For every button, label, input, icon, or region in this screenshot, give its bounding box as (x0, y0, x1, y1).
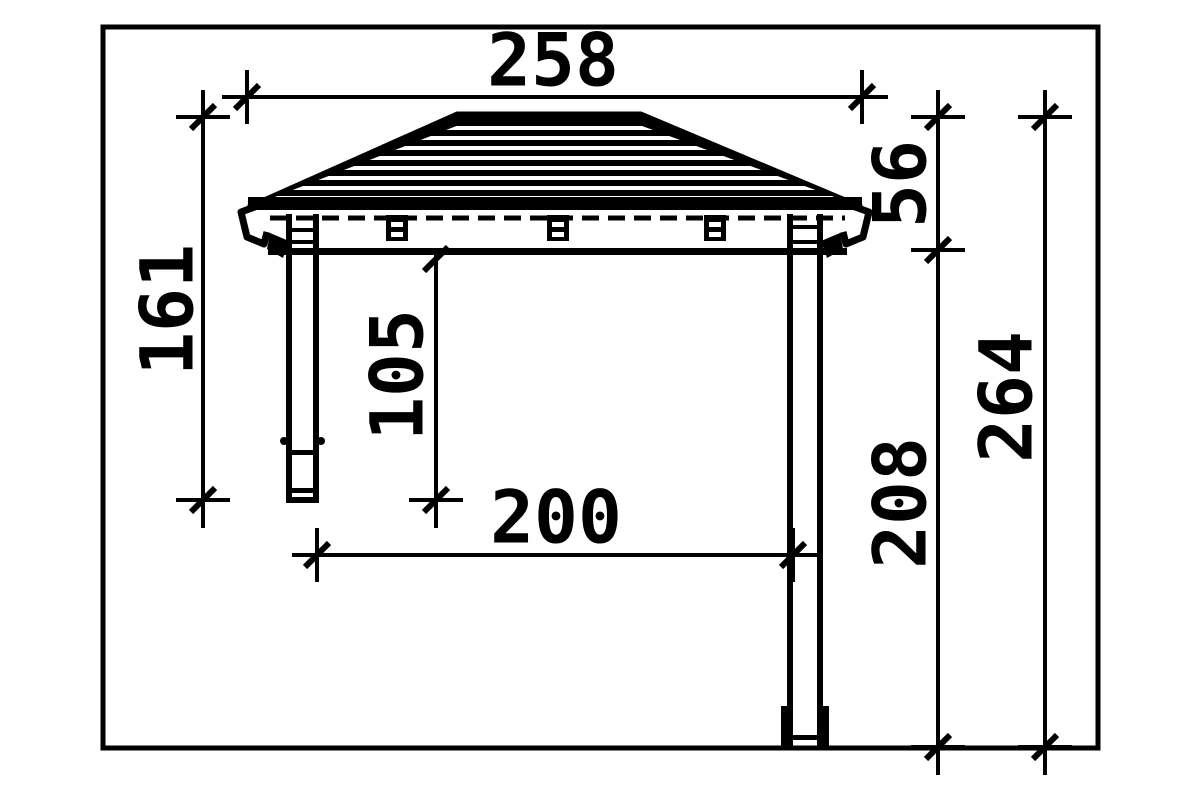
right-post (781, 214, 829, 747)
dim-label-roof-width: 258 (487, 25, 619, 98)
anchor-plate (823, 706, 829, 747)
dim-label-clearance-height: 105 (362, 309, 435, 441)
dim-label-left-height: 161 (132, 244, 205, 376)
rafter-hanger (704, 215, 726, 241)
left-gutter-end (241, 204, 289, 258)
anchor-bolt (280, 437, 288, 445)
eave-fascia-board (248, 197, 862, 210)
dim-label-total-height: 264 (971, 331, 1044, 463)
anchor-plate (781, 706, 787, 747)
dim-label-post-span: 200 (490, 482, 622, 555)
roof (240, 113, 870, 210)
rafter-hanger (386, 215, 408, 241)
carport-side-elevation-drawing: 258 161 105 200 56 208 264 (0, 0, 1200, 800)
anchor-bolt (317, 437, 325, 445)
rafter-hanger (547, 215, 569, 241)
eave-beam (268, 248, 847, 255)
dim-label-roof-height: 56 (865, 140, 938, 228)
dim-label-wall-height: 208 (865, 437, 938, 569)
left-post (280, 214, 325, 503)
